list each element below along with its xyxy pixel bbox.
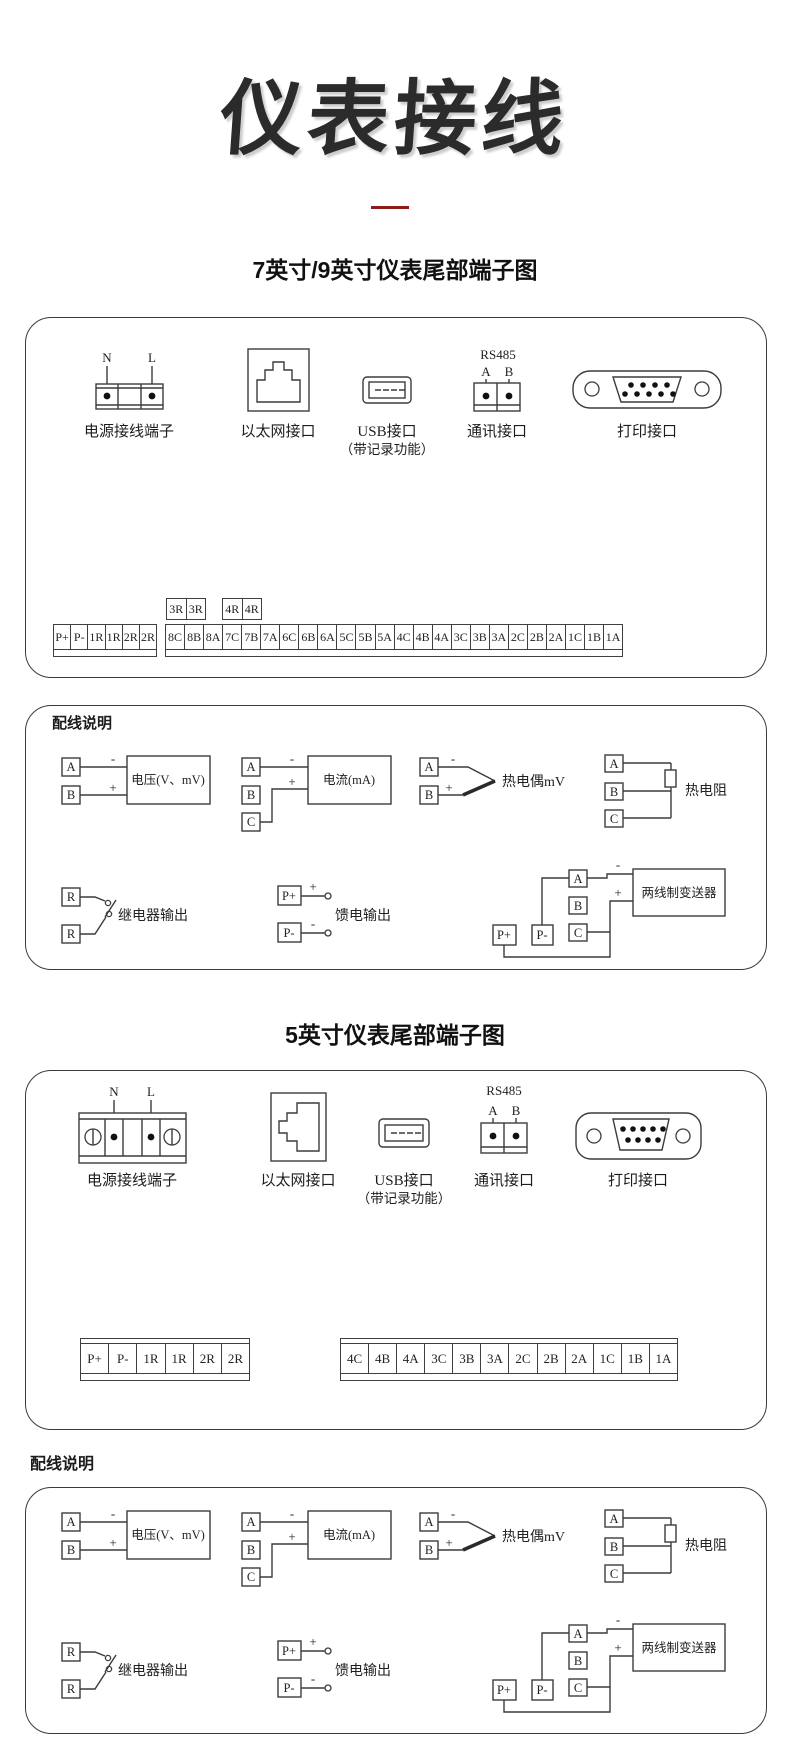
terminal-b: B bbox=[574, 1654, 582, 1668]
power-terminal-caption: 电源接线端子 bbox=[87, 1172, 177, 1189]
terminal-p-plus: P+ bbox=[497, 928, 511, 942]
terminal-strip-power-relay-5: P+P-1R1R2R2R bbox=[80, 1338, 250, 1381]
print-caption: 打印接口 bbox=[608, 1172, 668, 1189]
usb-caption-line2: （带记录功能） bbox=[340, 442, 435, 457]
terminal-cell: 3C bbox=[425, 1344, 453, 1373]
transmitter-label: 两线制变送器 bbox=[641, 1640, 717, 1655]
plus-sign: + bbox=[309, 1634, 316, 1649]
terminal-a: A bbox=[424, 760, 433, 774]
terminal-cell: 4C bbox=[341, 1344, 369, 1373]
red-divider bbox=[371, 206, 409, 209]
terminal-cell: 1R bbox=[88, 625, 105, 649]
usb-port-drawing bbox=[379, 1119, 429, 1147]
terminal-b: B bbox=[610, 1540, 618, 1554]
terminal-p-plus: P+ bbox=[282, 889, 296, 903]
resistor-symbol bbox=[665, 1525, 676, 1542]
terminal-cell: 3B bbox=[471, 625, 490, 649]
terminal-cell: 3C bbox=[452, 625, 471, 649]
terminal-cell: 2A bbox=[547, 625, 566, 649]
terminal-cell: 1B bbox=[622, 1344, 650, 1373]
terminal-b: B bbox=[247, 1543, 255, 1557]
terminal-a: A bbox=[246, 1515, 255, 1529]
two-wire-transmitter-diagram: P+ P- A B C - + 两线制变送器 bbox=[493, 857, 725, 957]
minus-sign: - bbox=[451, 1506, 455, 1521]
wiring-note-title: 配线说明 bbox=[30, 1450, 94, 1474]
terminal-cell: 8C bbox=[166, 625, 185, 649]
usb-caption: USB接口 bbox=[374, 1172, 433, 1189]
feed-output-diagram: P+ P- + - 馈电输出 bbox=[278, 1634, 391, 1697]
terminal-cell: 3A bbox=[490, 625, 509, 649]
rtd-label: 热电阻 bbox=[685, 783, 727, 799]
terminal-p-plus: P+ bbox=[282, 1644, 296, 1658]
terminal-p-minus: P- bbox=[283, 926, 294, 940]
terminal-strip-channels-5: 4C4B4A3C3B3A2C2B2A1C1B1A bbox=[340, 1338, 678, 1381]
terminal-cell: 1R bbox=[137, 1344, 165, 1373]
terminal-cell: 3A bbox=[481, 1344, 509, 1373]
rtd-label: 热电阻 bbox=[685, 1538, 727, 1554]
terminal-cell: P- bbox=[109, 1344, 137, 1373]
terminal-n-label: N bbox=[102, 350, 112, 365]
terminal-c: C bbox=[610, 1567, 618, 1581]
usb-port-drawing bbox=[363, 377, 411, 403]
minus-sign: - bbox=[290, 1506, 294, 1521]
terminal-cell: 1A bbox=[604, 625, 622, 649]
minus-sign: - bbox=[451, 751, 455, 766]
terminal-b: B bbox=[610, 785, 618, 799]
relay-terminal-pair-4r: 4R4R bbox=[222, 598, 262, 620]
minus-sign: - bbox=[616, 1612, 620, 1627]
thermocouple-input-diagram: A B - + 热电偶mV bbox=[420, 751, 565, 804]
current-label: 电流(mA) bbox=[323, 1528, 375, 1542]
switch-contact bbox=[105, 900, 110, 905]
plus-sign: + bbox=[288, 774, 295, 789]
minus-sign: - bbox=[311, 916, 315, 931]
feed-label: 馈电输出 bbox=[335, 1663, 391, 1679]
ethernet-port-drawing bbox=[248, 349, 309, 411]
resistor-symbol bbox=[665, 770, 676, 787]
rs485-a-label: A bbox=[481, 364, 491, 379]
product-wiring-page: 仪表接线 7英寸/9英寸仪表尾部端子图 N L bbox=[0, 0, 790, 1756]
plus-sign: + bbox=[445, 780, 452, 795]
terminal-cell: 1A bbox=[650, 1344, 677, 1373]
print-caption: 打印接口 bbox=[617, 423, 677, 440]
terminal-n-label: N bbox=[109, 1084, 119, 1099]
voltage-label: 电压(V、mV) bbox=[131, 773, 205, 787]
rs485-comm-drawing: RS485 A B bbox=[474, 347, 520, 411]
rs485-label: RS485 bbox=[480, 347, 515, 362]
terminal-b: B bbox=[425, 1543, 433, 1557]
voltage-input-diagram: A B - + 电压(V、mV) bbox=[62, 751, 210, 804]
terminal-cell: 4A bbox=[433, 625, 452, 649]
terminal-cell: 5C bbox=[337, 625, 356, 649]
power-terminal-drawing: N L bbox=[79, 1084, 186, 1163]
terminal-strip-power-relay-7-9: P+P-1R1R2R2R bbox=[53, 624, 157, 657]
terminal-cell: 3B bbox=[453, 1344, 481, 1373]
terminal-r: R bbox=[67, 1682, 76, 1696]
relay-output-diagram: R R 继电器输出 bbox=[62, 1643, 188, 1698]
terminal-cell: 2R bbox=[123, 625, 140, 649]
terminal-cell: 2C bbox=[509, 625, 528, 649]
terminal-cell: 8B bbox=[185, 625, 204, 649]
terminal-cell: 4R bbox=[243, 599, 262, 619]
terminal-cell: 2B bbox=[528, 625, 547, 649]
terminal-cell: 7A bbox=[261, 625, 280, 649]
terminal-cell: P+ bbox=[54, 625, 71, 649]
transmitter-label: 两线制变送器 bbox=[641, 885, 717, 900]
printer-port-drawing bbox=[573, 371, 721, 408]
terminal-cell: 4B bbox=[414, 625, 433, 649]
relay-label: 继电器输出 bbox=[118, 1663, 188, 1679]
terminal-a: A bbox=[573, 872, 582, 886]
terminal-cell: 6B bbox=[299, 625, 318, 649]
thermocouple-label: 热电偶mV bbox=[502, 1529, 565, 1545]
terminal-cell: 4B bbox=[369, 1344, 397, 1373]
terminal-cell: 2R bbox=[140, 625, 156, 649]
terminal-cell: 1B bbox=[585, 625, 604, 649]
rs485-label: RS485 bbox=[486, 1083, 521, 1098]
plus-sign: + bbox=[109, 1535, 116, 1550]
terminal-b: B bbox=[425, 788, 433, 802]
terminal-cell: 2B bbox=[538, 1344, 566, 1373]
voltage-input-diagram: A B - + 电压(V、mV) bbox=[62, 1506, 210, 1559]
terminal-cell: 5A bbox=[376, 625, 395, 649]
terminal-strip-base bbox=[80, 1374, 250, 1381]
plus-sign: + bbox=[614, 885, 621, 900]
terminal-p-plus: P+ bbox=[497, 1683, 511, 1697]
terminal-cell: 1R bbox=[166, 1344, 194, 1373]
rtd-input-diagram: A B C 热电阻 bbox=[605, 1510, 727, 1582]
ethernet-port-drawing bbox=[271, 1093, 326, 1161]
terminal-cell: 2A bbox=[566, 1344, 594, 1373]
terminal-c: C bbox=[247, 1570, 255, 1584]
feed-label: 馈电输出 bbox=[335, 908, 391, 924]
terminal-b: B bbox=[67, 1543, 75, 1557]
power-terminal-drawing: N L bbox=[96, 350, 163, 409]
terminal-b: B bbox=[67, 788, 75, 802]
feed-output-diagram: P+ P- + - 馈电输出 bbox=[278, 879, 391, 942]
terminal-cell: 2R bbox=[222, 1344, 249, 1373]
terminal-cell: 5B bbox=[356, 625, 375, 649]
terminal-a: A bbox=[66, 1515, 75, 1529]
terminal-c: C bbox=[574, 926, 582, 940]
plus-sign: + bbox=[109, 780, 116, 795]
terminal-strip-base bbox=[165, 650, 623, 657]
minus-sign: - bbox=[311, 1671, 315, 1686]
plus-sign: + bbox=[309, 879, 316, 894]
rs485-b-label: B bbox=[512, 1103, 521, 1118]
terminal-l-label: L bbox=[147, 1084, 155, 1099]
terminal-a: A bbox=[609, 757, 618, 771]
terminal-cell: 3R bbox=[167, 599, 187, 619]
rs485-a-label: A bbox=[488, 1103, 498, 1118]
terminal-cell: 1R bbox=[106, 625, 123, 649]
terminal-p-minus: P- bbox=[283, 1681, 294, 1695]
terminal-cell: 4C bbox=[395, 625, 414, 649]
printer-port-drawing bbox=[576, 1113, 701, 1159]
terminal-a: A bbox=[66, 760, 75, 774]
minus-sign: - bbox=[616, 857, 620, 872]
terminal-a: A bbox=[609, 1512, 618, 1526]
thermocouple-input-diagram: A B - + 热电偶mV bbox=[420, 1506, 565, 1559]
terminal-p-minus: P- bbox=[536, 1683, 547, 1697]
terminal-cell: 2R bbox=[194, 1344, 222, 1373]
minus-sign: - bbox=[111, 751, 115, 766]
section-heading-5-inch: 5英寸仪表尾部端子图 bbox=[0, 1016, 790, 1050]
relay-terminal-pair-3r: 3R3R bbox=[166, 598, 206, 620]
terminal-cell: 8A bbox=[204, 625, 223, 649]
terminal-a: A bbox=[424, 1515, 433, 1529]
section-heading-7-9-inch: 7英寸/9英寸仪表尾部端子图 bbox=[0, 251, 790, 285]
terminal-l-label: L bbox=[148, 350, 156, 365]
terminal-a: A bbox=[573, 1627, 582, 1641]
terminal-a: A bbox=[246, 760, 255, 774]
ethernet-caption: 以太网接口 bbox=[240, 423, 315, 440]
terminal-b: B bbox=[574, 899, 582, 913]
terminal-c: C bbox=[247, 815, 255, 829]
minus-sign: - bbox=[290, 751, 294, 766]
rs485-b-label: B bbox=[505, 364, 514, 379]
relay-label: 继电器输出 bbox=[118, 908, 188, 924]
relay-output-diagram: R R 继电器输出 bbox=[62, 888, 188, 943]
comm-caption: 通讯接口 bbox=[474, 1172, 534, 1189]
minus-sign: - bbox=[111, 1506, 115, 1521]
current-input-diagram: A B C - + 电流(mA) bbox=[242, 751, 391, 831]
wiring-diagrams-7-9: A B - + 电压(V、mV) A B C - + 电流(mA) A B - … bbox=[25, 748, 765, 966]
usb-caption-line2: （带记录功能） bbox=[357, 1191, 452, 1206]
switch-contact bbox=[105, 1655, 110, 1660]
terminal-strip-base bbox=[53, 650, 157, 657]
terminal-c: C bbox=[610, 812, 618, 826]
wiring-note-title: 配线说明 bbox=[52, 712, 112, 733]
terminal-cell: 6C bbox=[280, 625, 299, 649]
terminal-cell: 7B bbox=[242, 625, 261, 649]
terminal-cell: 2C bbox=[509, 1344, 537, 1373]
rs485-comm-drawing: RS485 A B bbox=[481, 1083, 527, 1153]
current-input-diagram: A B C - + 电流(mA) bbox=[242, 1506, 391, 1586]
current-label: 电流(mA) bbox=[323, 773, 375, 787]
terminal-strip-channels-7-9: 8C8B8A7C7B7A6C6B6A5C5B5A4C4B4A3C3B3A2C2B… bbox=[165, 624, 623, 657]
terminal-cell: 7C bbox=[223, 625, 242, 649]
terminal-cell: P- bbox=[71, 625, 88, 649]
terminal-r: R bbox=[67, 890, 76, 904]
power-terminal-caption: 电源接线端子 bbox=[84, 423, 174, 440]
terminal-cell: P+ bbox=[81, 1344, 109, 1373]
rtd-input-diagram: A B C 热电阻 bbox=[605, 755, 727, 827]
plus-sign: + bbox=[614, 1640, 621, 1655]
terminal-b: B bbox=[247, 788, 255, 802]
terminal-cell: 1C bbox=[566, 625, 585, 649]
connectors-drawing-7-9: N L RS485 A B bbox=[26, 318, 766, 518]
plus-sign: + bbox=[445, 1535, 452, 1550]
page-title: 仪表接线 bbox=[0, 52, 790, 171]
connectors-drawing-5: N L RS485 A B bbox=[26, 1071, 766, 1291]
terminal-cell: 6A bbox=[318, 625, 337, 649]
usb-caption: USB接口 bbox=[357, 423, 416, 440]
terminal-cell: 4A bbox=[397, 1344, 425, 1373]
plus-sign: + bbox=[288, 1529, 295, 1544]
terminal-c: C bbox=[574, 1681, 582, 1695]
comm-caption: 通讯接口 bbox=[467, 423, 527, 440]
terminal-cell: 3R bbox=[187, 599, 206, 619]
two-wire-transmitter-diagram: P+ P- A B C - + 两线制变送器 bbox=[493, 1612, 725, 1712]
terminal-r: R bbox=[67, 927, 76, 941]
terminal-r: R bbox=[67, 1645, 76, 1659]
thermocouple-label: 热电偶mV bbox=[502, 774, 565, 790]
terminal-strip-base bbox=[340, 1374, 678, 1381]
terminal-cell: 1C bbox=[594, 1344, 622, 1373]
wiring-diagrams-5: A B - + 电压(V、mV) A B C - + 电流(mA) A B - … bbox=[25, 1503, 765, 1721]
voltage-label: 电压(V、mV) bbox=[131, 1528, 205, 1542]
terminal-cell: 4R bbox=[223, 599, 243, 619]
ethernet-caption: 以太网接口 bbox=[260, 1172, 335, 1189]
terminal-p-minus: P- bbox=[536, 928, 547, 942]
